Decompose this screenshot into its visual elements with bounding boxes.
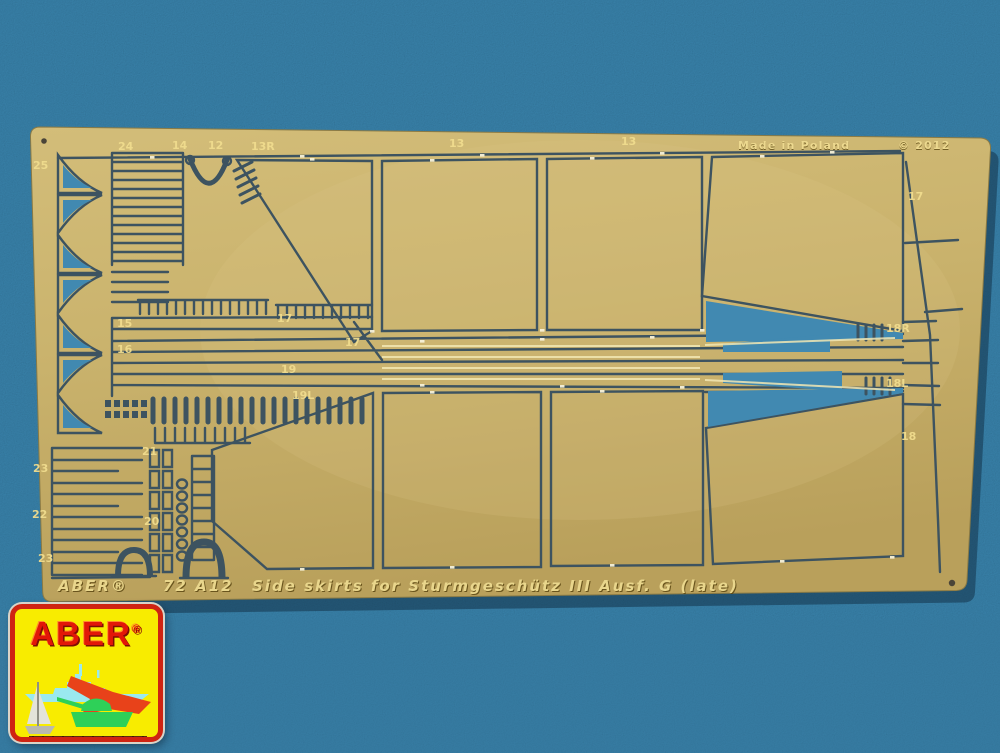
part-label: 21 (142, 445, 157, 458)
part-label: 20 (144, 515, 160, 528)
part-label: 17 (277, 312, 292, 325)
part-label: 13 (449, 137, 464, 150)
part-label: 14 (172, 139, 188, 152)
part-label: 18L (886, 377, 908, 390)
part-label: 13R (251, 140, 275, 153)
part-label: 17 (908, 190, 923, 203)
aber-logo-brand: ABER® (15, 611, 158, 652)
registered-mark: ® (132, 622, 143, 636)
part-label: 18 (901, 430, 916, 443)
part-label: 24 (118, 140, 134, 153)
part-label: 13 (621, 135, 636, 148)
aber-logo-text: ABER (30, 615, 132, 652)
aber-logo-art (17, 652, 157, 742)
part-label: 19 (281, 363, 296, 376)
part-label: 15 (117, 317, 132, 330)
part-label: 17 (345, 336, 360, 349)
part-label: 23 (38, 552, 53, 565)
sailboat-icon (25, 682, 55, 734)
part-label: 18R (886, 322, 910, 335)
part-label: 12 (208, 139, 223, 152)
corner-hole (949, 580, 955, 586)
part-label: 19L (292, 389, 314, 402)
part-label: 23 (33, 462, 48, 475)
logo-base-bar (29, 736, 147, 741)
part-label: 16 (117, 343, 133, 356)
part-label: 25 (33, 159, 48, 172)
corner-hole (41, 138, 47, 144)
product-photo-scene: Made in Poland © 2012 ABER® 72 A12 Side … (0, 0, 1000, 753)
part-label: 22 (32, 508, 47, 521)
made-in-text: Made in Poland © 2012 (738, 139, 951, 152)
etched-brass-fret (30, 127, 998, 615)
aber-logo: ABER® (10, 604, 163, 742)
